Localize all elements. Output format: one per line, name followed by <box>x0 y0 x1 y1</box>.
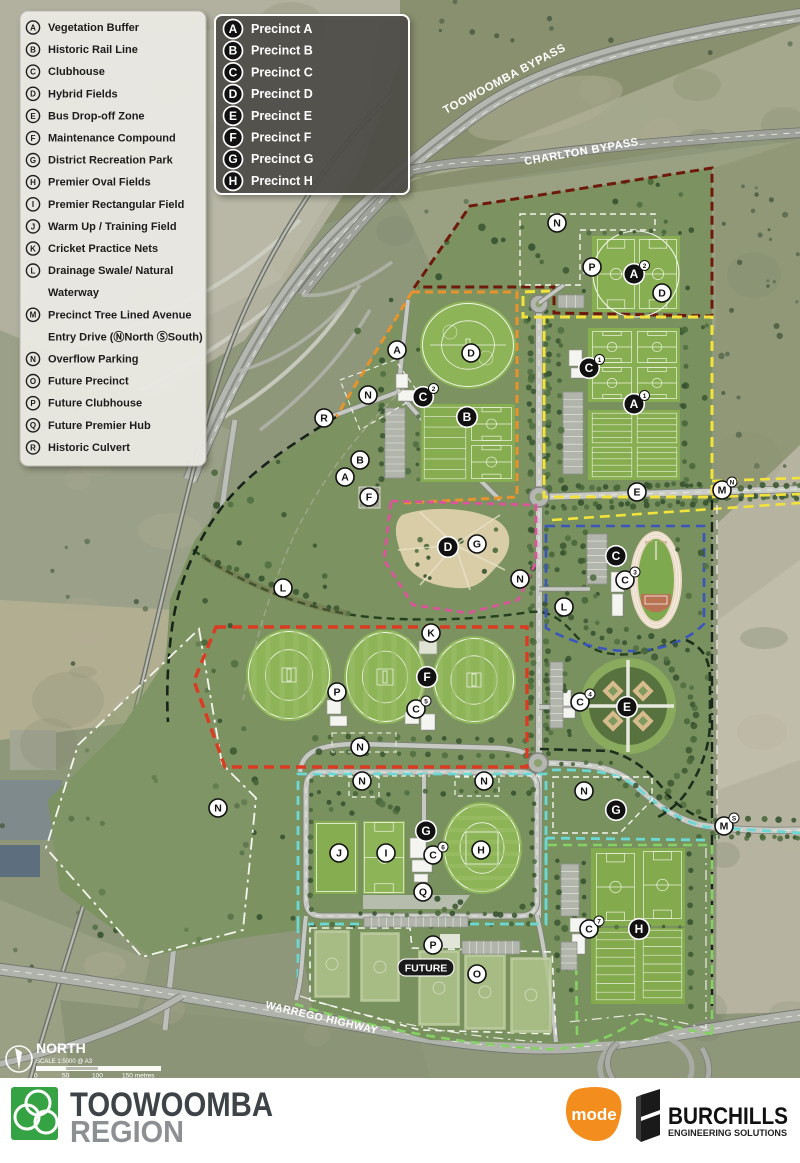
svg-text:P: P <box>588 262 595 274</box>
svg-text:Premier Oval Fields: Premier Oval Fields <box>48 177 151 189</box>
svg-text:D: D <box>30 90 36 99</box>
svg-text:G: G <box>30 156 36 165</box>
svg-text:Overflow Parking: Overflow Parking <box>48 354 138 366</box>
svg-text:D: D <box>467 348 475 360</box>
svg-text:6: 6 <box>441 844 445 851</box>
svg-text:Q: Q <box>419 887 427 899</box>
svg-text:L: L <box>561 602 568 614</box>
svg-text:C: C <box>419 390 428 404</box>
svg-text:Precinct H: Precinct H <box>251 174 313 188</box>
svg-text:ENGINEERING SOLUTIONS: ENGINEERING SOLUTIONS <box>668 1128 787 1138</box>
svg-text:4: 4 <box>588 691 592 698</box>
svg-text:Premier Rectangular Field: Premier Rectangular Field <box>48 199 184 211</box>
svg-text:I: I <box>32 200 34 209</box>
svg-text:Q: Q <box>30 421 36 430</box>
svg-text:A: A <box>630 397 639 411</box>
svg-text:Precinct G: Precinct G <box>251 152 314 166</box>
svg-text:F: F <box>229 131 236 145</box>
svg-text:N: N <box>358 776 366 788</box>
svg-text:1: 1 <box>643 393 647 400</box>
svg-text:A: A <box>393 345 401 357</box>
svg-text:2: 2 <box>432 386 436 393</box>
svg-text:7: 7 <box>597 918 601 925</box>
svg-text:N: N <box>516 574 524 586</box>
svg-text:C: C <box>621 575 629 587</box>
svg-text:Clubhouse: Clubhouse <box>48 66 105 78</box>
svg-text:N: N <box>480 776 488 788</box>
svg-text:E: E <box>30 112 36 121</box>
svg-text:N: N <box>553 218 561 230</box>
svg-text:Hybrid Fields: Hybrid Fields <box>48 88 118 100</box>
svg-text:B: B <box>463 410 472 424</box>
svg-text:L: L <box>31 267 36 276</box>
svg-text:Waterway: Waterway <box>48 287 100 299</box>
svg-text:mode: mode <box>571 1105 616 1124</box>
svg-text:A: A <box>229 22 238 36</box>
svg-text:NORTH: NORTH <box>36 1040 86 1056</box>
svg-text:N: N <box>730 479 735 486</box>
svg-text:Precinct B: Precinct B <box>251 44 313 58</box>
svg-text:H: H <box>30 178 36 187</box>
svg-text:D: D <box>658 288 666 300</box>
svg-text:BURCHILLS: BURCHILLS <box>668 1103 788 1130</box>
svg-text:A: A <box>341 472 349 484</box>
svg-text:Future Precinct: Future Precinct <box>48 376 129 388</box>
svg-text:S: S <box>732 815 737 822</box>
svg-text:Precinct C: Precinct C <box>251 65 313 79</box>
svg-text:F: F <box>31 134 36 143</box>
svg-text:Historic Rail Line: Historic Rail Line <box>48 44 138 56</box>
svg-text:District Recreation Park: District Recreation Park <box>48 155 174 167</box>
svg-text:Future Clubhouse: Future Clubhouse <box>48 398 142 410</box>
svg-text:FUTURE: FUTURE <box>405 963 448 975</box>
svg-text:E: E <box>633 487 640 499</box>
svg-text:P: P <box>333 687 340 699</box>
svg-text:3: 3 <box>633 569 637 576</box>
svg-text:C: C <box>585 924 593 936</box>
svg-text:Precinct E: Precinct E <box>251 109 312 123</box>
svg-text:Warm Up / Training Field: Warm Up / Training Field <box>48 221 177 233</box>
svg-text:5: 5 <box>424 698 428 705</box>
svg-text:B: B <box>229 44 238 58</box>
svg-text:P: P <box>429 940 436 952</box>
svg-text:G: G <box>473 539 481 551</box>
svg-text:J: J <box>31 222 35 231</box>
svg-text:C: C <box>429 850 437 862</box>
svg-text:J: J <box>336 848 342 860</box>
svg-text:Precinct A: Precinct A <box>251 22 312 36</box>
svg-text:REGION: REGION <box>70 1114 184 1149</box>
svg-text:Cricket Practice Nets: Cricket Practice Nets <box>48 243 158 255</box>
svg-text:A: A <box>30 23 36 32</box>
svg-text:C: C <box>412 704 420 716</box>
svg-text:K: K <box>427 628 435 640</box>
svg-text:C: C <box>612 549 621 563</box>
svg-text:B: B <box>356 455 364 467</box>
svg-text:Vegetation Buffer: Vegetation Buffer <box>48 22 140 34</box>
svg-text:D: D <box>444 540 453 554</box>
svg-text:Entry Drive (ⓃNorth ⓈSouth): Entry Drive (ⓃNorth ⓈSouth) <box>48 329 203 343</box>
svg-text:M: M <box>718 485 727 497</box>
svg-text:N: N <box>364 390 372 402</box>
svg-text:O: O <box>473 969 481 981</box>
svg-text:Drainage Swale/ Natural: Drainage Swale/ Natural <box>48 265 173 277</box>
svg-text:C: C <box>585 361 594 375</box>
svg-text:Precinct Tree Lined Avenue: Precinct Tree Lined Avenue <box>48 309 191 321</box>
svg-text:A: A <box>630 267 639 281</box>
svg-text:1: 1 <box>598 357 602 364</box>
svg-text:H: H <box>229 174 238 188</box>
svg-text:R: R <box>320 413 328 425</box>
svg-text:M: M <box>720 821 729 833</box>
svg-text:B: B <box>30 46 36 55</box>
svg-text:P: P <box>30 399 36 408</box>
svg-text:H: H <box>635 922 644 936</box>
svg-text:Maintenance Compound: Maintenance Compound <box>48 133 176 145</box>
svg-text:F: F <box>366 492 373 504</box>
svg-text:Historic Culvert: Historic Culvert <box>48 442 130 454</box>
svg-text:N: N <box>214 803 222 815</box>
svg-text:C: C <box>30 68 36 77</box>
svg-text:G: G <box>228 152 237 166</box>
svg-text:L: L <box>280 583 287 595</box>
svg-text:N: N <box>580 786 588 798</box>
svg-text:M: M <box>30 311 37 320</box>
svg-text:F: F <box>423 670 430 684</box>
svg-text:G: G <box>611 803 620 817</box>
svg-text:D: D <box>229 87 238 101</box>
svg-text:H: H <box>477 845 485 857</box>
svg-text:G: G <box>421 824 430 838</box>
svg-text:Future Premier Hub: Future Premier Hub <box>48 420 151 432</box>
svg-text:C: C <box>576 697 584 709</box>
svg-text:E: E <box>623 700 631 714</box>
svg-text:N: N <box>30 355 36 364</box>
svg-text:2: 2 <box>643 263 647 270</box>
svg-text:I: I <box>385 848 388 860</box>
svg-text:R: R <box>30 443 36 452</box>
svg-text:O: O <box>30 377 36 386</box>
svg-text:SCALE 1:5000 @ A3: SCALE 1:5000 @ A3 <box>36 1059 93 1065</box>
svg-text:C: C <box>229 65 238 79</box>
svg-text:Bus Drop-off Zone: Bus Drop-off Zone <box>48 110 145 122</box>
svg-text:K: K <box>30 244 36 253</box>
svg-text:Precinct D: Precinct D <box>251 87 313 101</box>
svg-text:E: E <box>229 109 237 123</box>
svg-text:N: N <box>356 742 364 754</box>
svg-text:Precinct F: Precinct F <box>251 131 312 145</box>
